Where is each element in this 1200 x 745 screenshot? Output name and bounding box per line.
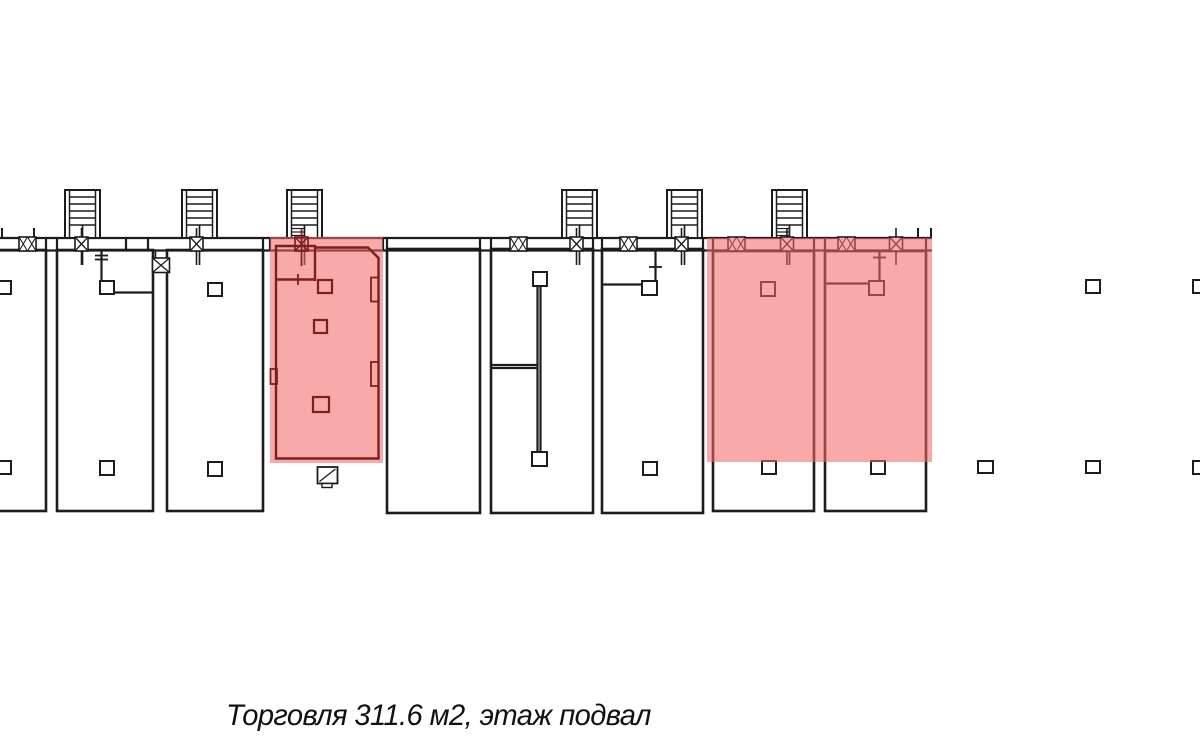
column [642,281,657,295]
hatch-box-tab [322,484,332,488]
column [100,461,114,475]
window-hatch-icon [620,237,637,251]
window-frame [620,237,637,251]
floor-plan-viewport: Торговля 311.6 м2, этаж подвал [0,0,1200,745]
column [533,272,547,286]
column [532,452,547,466]
column [1086,280,1100,293]
column [762,461,776,474]
hatch-box-icon [318,467,338,488]
column [1086,461,1100,473]
plan-caption: Торговля 311.6 м2, этаж подвал [226,699,651,733]
highlight-overlay [270,237,383,463]
column [1193,461,1200,474]
column [871,461,885,474]
window-hatch-icon [19,237,36,251]
room [387,249,480,513]
column [0,281,11,294]
window-frame [19,237,36,251]
column [100,281,114,294]
column [1193,280,1200,293]
highlight-overlay [707,238,932,462]
window-frame [510,237,527,251]
window-x-icon [153,250,170,273]
room [491,249,593,513]
column [208,283,222,296]
floor-plan [0,0,1200,745]
column [978,461,993,473]
column [208,462,222,476]
column [643,462,657,475]
window-hatch-icon [510,237,527,251]
column [0,461,11,474]
